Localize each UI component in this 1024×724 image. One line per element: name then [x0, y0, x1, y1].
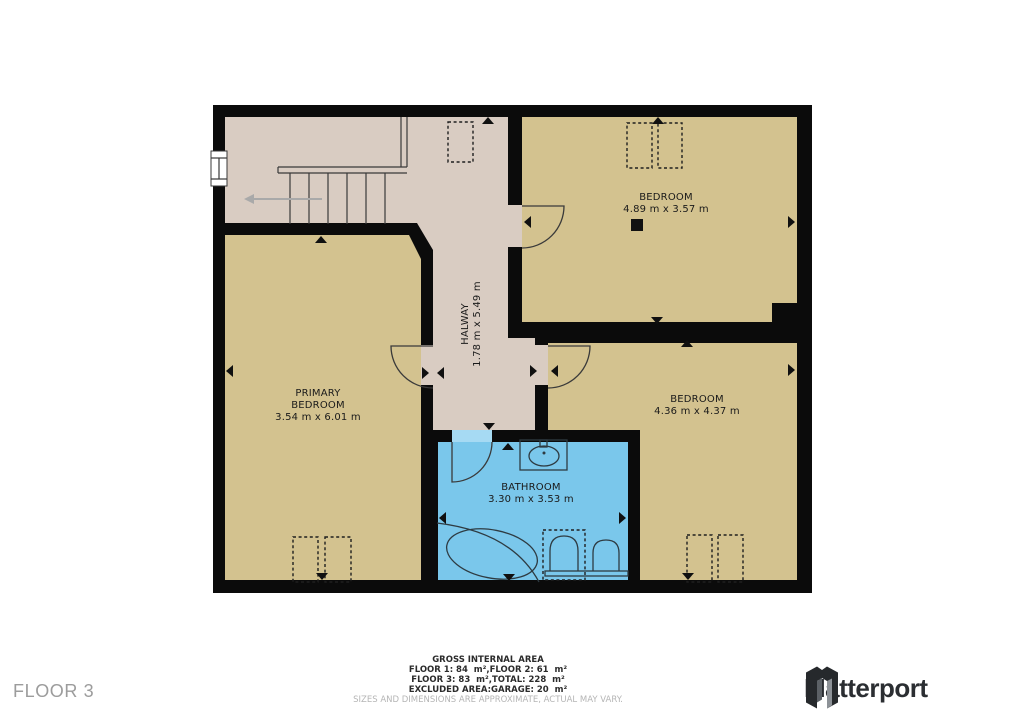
primary-bedroom-label2: BEDROOM — [291, 400, 345, 411]
area-summary-line: FLOOR 3: 83 m²,TOTAL: 228 m² — [353, 675, 623, 685]
bathroom-dims: 3.30 m x 3.53 m — [488, 494, 574, 505]
primary-bedroom-dims: 3.54 m x 6.01 m — [275, 412, 361, 423]
bathroom-label: BATHROOM — [501, 482, 560, 493]
hallway-label: HALWAY — [460, 302, 471, 344]
area-disclaimer: SIZES AND DIMENSIONS ARE APPROXIMATE, AC… — [353, 695, 623, 706]
area-summary: GROSS INTERNAL AREA FLOOR 1: 84 m²,FLOOR… — [353, 655, 623, 706]
brand-logo: Matterport — [804, 665, 928, 712]
window — [211, 151, 227, 186]
matterport-icon — [804, 665, 840, 710]
bedroom-right-label: BEDROOM — [670, 394, 724, 405]
hallway-dims: 1.78 m x 5.49 m — [472, 281, 483, 367]
floorplan: BEDROOM 4.89 m x 3.57 m PRIMARY BEDROOM … — [0, 0, 1024, 724]
bedroom-top-floor — [522, 117, 797, 322]
area-summary-title: GROSS INTERNAL AREA — [353, 655, 623, 665]
floorplan-page: BEDROOM 4.89 m x 3.57 m PRIMARY BEDROOM … — [0, 0, 1024, 724]
area-summary-line: FLOOR 1: 84 m²,FLOOR 2: 61 m² — [353, 665, 623, 675]
bedroom-right-dims: 4.36 m x 4.37 m — [654, 406, 740, 417]
primary-bedroom-label1: PRIMARY — [295, 388, 341, 399]
bedroom-top-dims: 4.89 m x 3.57 m — [623, 204, 709, 215]
area-summary-line: EXCLUDED AREA:GARAGE: 20 m² — [353, 685, 623, 695]
bedroom-top-label: BEDROOM — [639, 192, 693, 203]
column — [631, 219, 643, 231]
drain — [543, 452, 546, 455]
floor-label: FLOOR 3 — [13, 681, 94, 702]
